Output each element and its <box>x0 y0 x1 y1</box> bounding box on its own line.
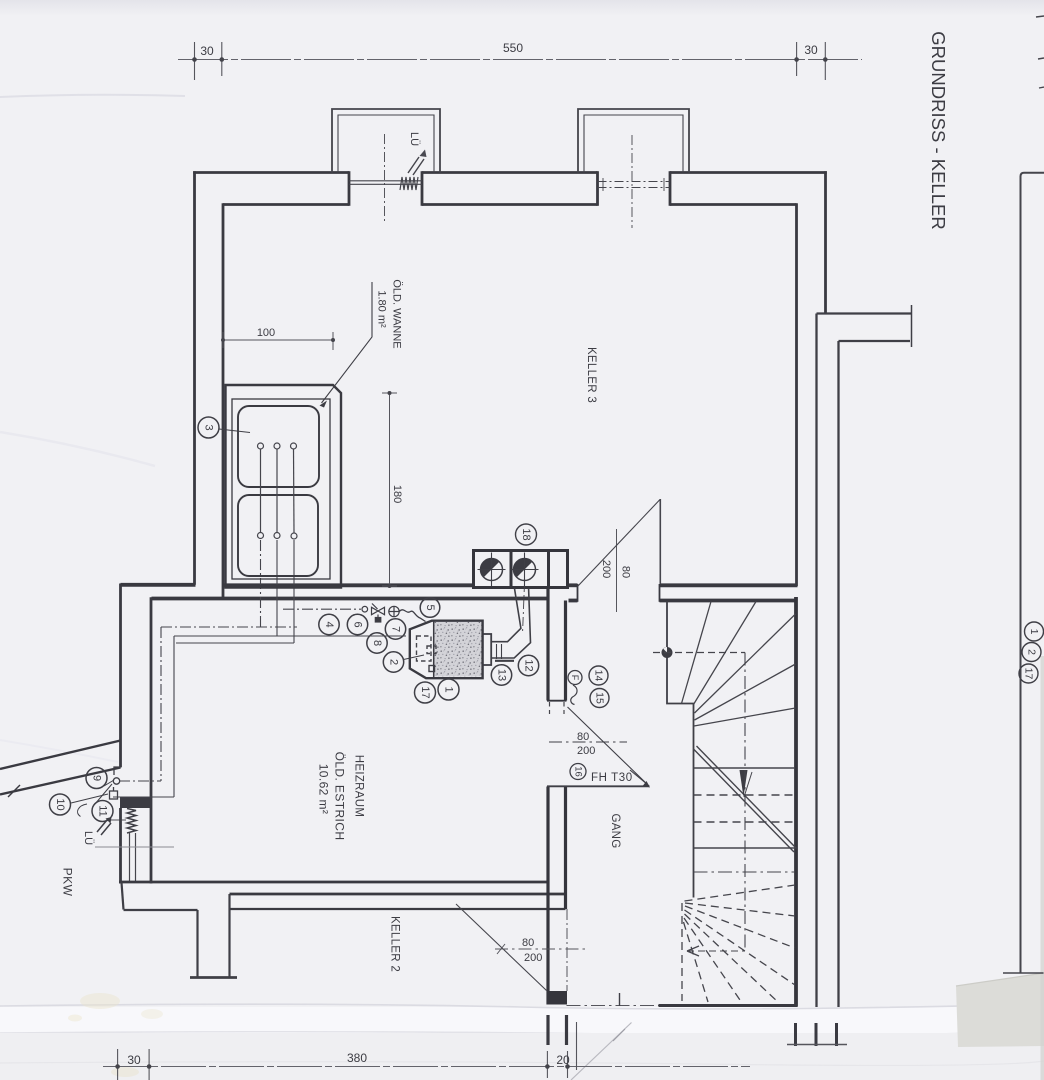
svg-text:FH T30: FH T30 <box>591 772 633 784</box>
svg-text:30: 30 <box>804 43 818 57</box>
svg-text:F: F <box>570 675 580 681</box>
svg-text:18: 18 <box>520 528 532 540</box>
svg-text:200: 200 <box>600 560 612 578</box>
svg-text:80: 80 <box>577 731 589 743</box>
svg-text:17: 17 <box>419 686 431 698</box>
svg-text:1: 1 <box>443 686 455 692</box>
svg-text:13: 13 <box>496 669 508 681</box>
svg-text:LÜ: LÜ <box>408 132 420 146</box>
svg-text:7: 7 <box>390 626 402 632</box>
svg-text:1: 1 <box>1028 629 1040 635</box>
svg-text:10.62 m²: 10.62 m² <box>317 764 331 815</box>
svg-text:180: 180 <box>391 485 403 503</box>
svg-text:HEIZRAUM: HEIZRAUM <box>353 755 365 817</box>
svg-text:80: 80 <box>620 566 632 578</box>
svg-text:2: 2 <box>1026 649 1038 655</box>
svg-text:80: 80 <box>522 937 534 949</box>
svg-text:17: 17 <box>1023 668 1035 680</box>
svg-text:3: 3 <box>203 424 215 430</box>
svg-text:12: 12 <box>523 659 535 671</box>
svg-text:5: 5 <box>424 604 436 610</box>
svg-text:200: 200 <box>577 745 595 757</box>
svg-text:KELLER 2: KELLER 2 <box>389 916 401 972</box>
svg-text:550: 550 <box>503 41 523 55</box>
svg-text:100: 100 <box>257 327 275 339</box>
svg-text:30: 30 <box>200 44 214 58</box>
svg-text:20: 20 <box>556 1053 570 1067</box>
svg-text:4: 4 <box>323 621 335 627</box>
svg-text:30: 30 <box>127 1053 141 1067</box>
svg-text:200: 200 <box>524 952 542 964</box>
svg-text:ÖLD. WANNE: ÖLD. WANNE <box>391 279 403 348</box>
svg-text:10: 10 <box>54 798 66 810</box>
svg-text:6: 6 <box>352 621 364 627</box>
svg-text:15: 15 <box>594 692 606 704</box>
svg-text:16: 16 <box>573 766 584 777</box>
svg-text:LÜ: LÜ <box>82 831 94 845</box>
svg-text:11: 11 <box>97 805 109 816</box>
svg-text:380: 380 <box>347 1051 367 1065</box>
svg-text:8: 8 <box>371 640 383 646</box>
svg-text:GRUNDRISS - KELLER: GRUNDRISS - KELLER <box>928 31 949 229</box>
svg-text:9: 9 <box>91 775 103 781</box>
svg-text:PKW: PKW <box>61 868 75 897</box>
svg-text:GANG: GANG <box>609 813 621 848</box>
svg-text:ÖLD. ESTRICH: ÖLD. ESTRICH <box>333 752 347 841</box>
svg-text:2: 2 <box>388 659 400 665</box>
svg-text:KELLER 3: KELLER 3 <box>585 347 597 403</box>
svg-text:1.80 m²: 1.80 m² <box>376 290 388 328</box>
svg-text:14: 14 <box>593 670 605 682</box>
